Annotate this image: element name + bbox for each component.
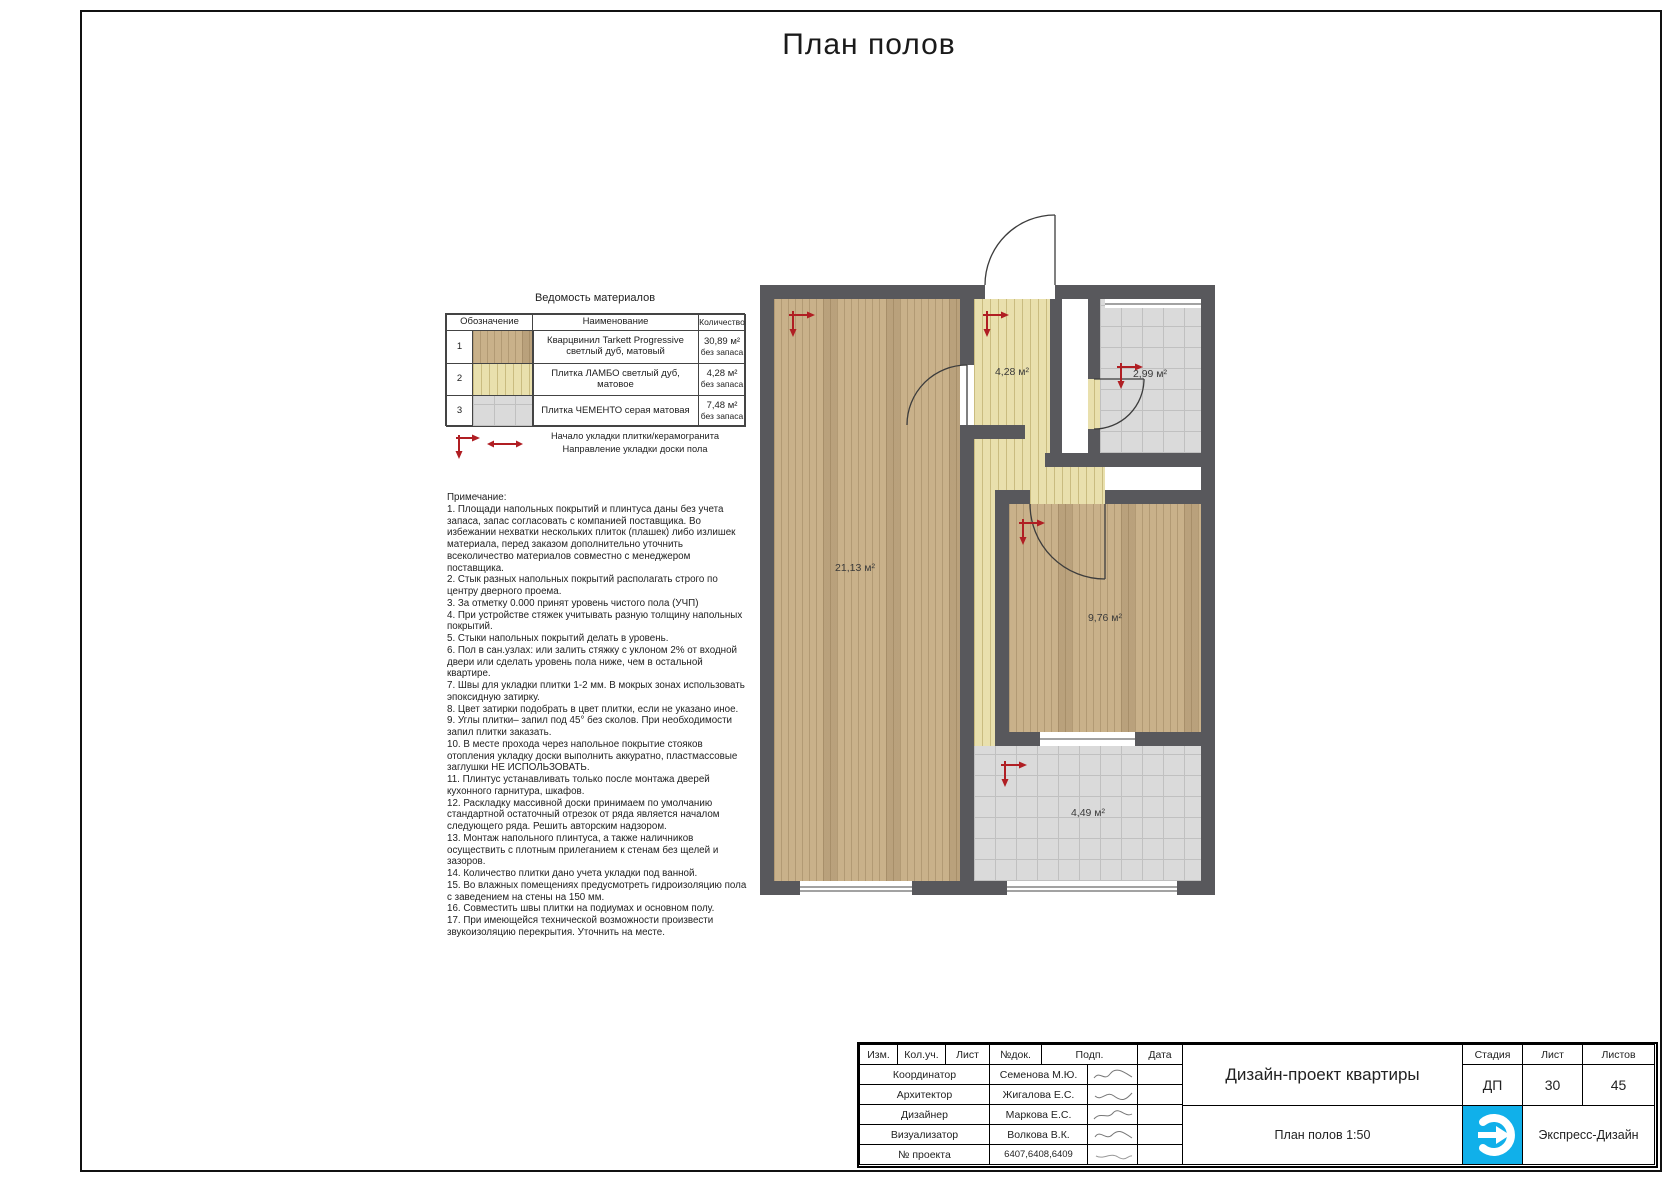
floor-plan: 21,13 м² 4,28 м² 2,99 м² 9,76 м² 4,49 м² bbox=[760, 200, 1215, 895]
note-item: 12. Раскладку массивной доски принимаем … bbox=[447, 798, 749, 833]
qty-note: без запаса bbox=[701, 348, 744, 358]
tb-name: Жигалова Е.С. bbox=[989, 1084, 1088, 1105]
qty-value: 30,89 м² bbox=[704, 337, 740, 348]
tb-role: Координатор bbox=[859, 1064, 990, 1085]
note-item: 17. При имеющейся технической возможност… bbox=[447, 915, 749, 939]
note-item: 14. Количество плитки дано учета укладки… bbox=[447, 868, 749, 880]
tb-header-koluch: Кол.уч. bbox=[897, 1044, 946, 1065]
tile-start-marker bbox=[1019, 519, 1045, 545]
tb-header-ndok: №док. bbox=[989, 1044, 1042, 1065]
note-item: 10. В месте прохода через напольное покр… bbox=[447, 739, 749, 774]
note-item: 16. Совместить швы плитки на подиумах и … bbox=[447, 903, 749, 915]
note-item: 15. Во влажных помещениях предусмотреть … bbox=[447, 880, 749, 904]
room-area-label: 2,99 м² bbox=[1110, 368, 1190, 380]
tb-date-cell bbox=[1137, 1144, 1183, 1165]
tb-role: Визуализатор bbox=[859, 1124, 990, 1145]
note-item: 9. Углы плитки– запил под 45° без сколов… bbox=[447, 715, 749, 739]
flooring-legend: Начало укладки плитки/керамогранита Напр… bbox=[445, 430, 745, 466]
qty-value: 7,48 м² bbox=[707, 401, 738, 412]
legend-line: Начало укладки плитки/керамогранита bbox=[530, 430, 740, 443]
legend-line: Направление укладки доски пола bbox=[530, 443, 740, 456]
room-area-label: 4,49 м² bbox=[1048, 807, 1128, 819]
note-item: 8. Цвет затирки подобрать в цвет плитки,… bbox=[447, 704, 749, 716]
tb-name: Семенова М.Ю. bbox=[989, 1064, 1088, 1085]
col-header-designation: Обозначение bbox=[446, 314, 533, 331]
tb-sheet-value: 30 bbox=[1522, 1064, 1583, 1106]
materials-table: Обозначение Наименование Количество 1 Кв… bbox=[445, 313, 745, 426]
col-header-name: Наименование bbox=[532, 314, 699, 331]
legend-icons bbox=[447, 430, 527, 464]
tb-date-cell bbox=[1137, 1104, 1183, 1125]
tb-signature-cell bbox=[1087, 1144, 1138, 1165]
tb-name: Волкова В.К. bbox=[989, 1124, 1088, 1145]
drawing-sheet: План полов Ведомость материалов Обозначе… bbox=[0, 0, 1680, 1187]
room-area-label: 9,76 м² bbox=[1065, 612, 1145, 624]
swatch-tile-cemento bbox=[472, 395, 534, 427]
table-row-num: 3 bbox=[446, 395, 473, 427]
swatch-tile-lambo bbox=[472, 363, 534, 396]
tb-signature-cell bbox=[1087, 1104, 1138, 1125]
signature-icon bbox=[1092, 1128, 1134, 1142]
company-logo-icon bbox=[1469, 1111, 1517, 1159]
signature-icon bbox=[1092, 1148, 1134, 1162]
tb-role: Дизайнер bbox=[859, 1104, 990, 1125]
material-name: Плитка ЛАМБО светлый дуб, матовое bbox=[532, 363, 699, 396]
bathroom-door-arc bbox=[1094, 379, 1144, 429]
note-item: 11. Плинтус устанавливать только после м… bbox=[447, 774, 749, 798]
tb-stage-value: ДП bbox=[1462, 1064, 1523, 1106]
signature-icon bbox=[1092, 1088, 1134, 1102]
note-item: 5. Стыки напольных покрытий делать в уро… bbox=[447, 633, 749, 645]
tb-sheets-value: 45 bbox=[1582, 1064, 1655, 1106]
tb-role: № проекта bbox=[859, 1144, 990, 1165]
room-area-label: 21,13 м² bbox=[815, 562, 895, 574]
tb-stage-header: Стадия bbox=[1462, 1044, 1523, 1065]
signature-icon bbox=[1092, 1108, 1134, 1122]
tb-date-cell bbox=[1137, 1124, 1183, 1145]
swatch-quartz-vinyl bbox=[472, 330, 534, 364]
tb-name: 6407,6408,6409 bbox=[989, 1144, 1088, 1165]
tile-start-marker bbox=[1001, 761, 1027, 787]
note-item: 4. При устройстве стяжек учитывать разну… bbox=[447, 610, 749, 634]
notes-title: Примечание: bbox=[447, 492, 749, 504]
tb-sheets-header: Листов bbox=[1582, 1044, 1655, 1065]
company-logo bbox=[1462, 1105, 1523, 1165]
note-item: 3. За отметку 0.000 принят уровень чисто… bbox=[447, 598, 749, 610]
material-name: Плитка ЧЕМЕНТО серая матовая bbox=[532, 395, 699, 427]
tb-header-data: Дата bbox=[1137, 1044, 1183, 1065]
page-title: План полов bbox=[80, 28, 1658, 62]
material-qty: 4,28 м² без запаса bbox=[698, 363, 746, 396]
tb-signature-cell bbox=[1087, 1084, 1138, 1105]
notes-block: Примечание: 1. Площади напольных покрыти… bbox=[447, 492, 749, 939]
qty-note: без запаса bbox=[701, 412, 744, 422]
entry-door-arc bbox=[985, 215, 1055, 285]
qty-note: без запаса bbox=[701, 380, 744, 390]
table-row-num: 2 bbox=[446, 363, 473, 396]
tb-role: Архитектор bbox=[859, 1084, 990, 1105]
tb-signature-cell bbox=[1087, 1064, 1138, 1085]
tb-sheet-header: Лист bbox=[1522, 1044, 1583, 1065]
title-block: Изм. Кол.уч. Лист №док. Подп. Дата Коорд… bbox=[857, 1042, 1658, 1168]
signature-icon bbox=[1092, 1068, 1134, 1082]
material-qty: 30,89 м² без запаса bbox=[698, 330, 746, 364]
tb-name: Маркова Е.С. bbox=[989, 1104, 1088, 1125]
tb-date-cell bbox=[1137, 1084, 1183, 1105]
table-row-num: 1 bbox=[446, 330, 473, 364]
tb-sheet-title: План полов 1:50 bbox=[1182, 1105, 1463, 1165]
room-area-label: 4,28 м² bbox=[972, 366, 1052, 378]
tile-start-icon bbox=[456, 435, 473, 452]
material-qty: 7,48 м² без запаса bbox=[698, 395, 746, 427]
tb-company-name: Экспресс-Дизайн bbox=[1522, 1105, 1655, 1165]
materials-table-title: Ведомость материалов bbox=[445, 292, 745, 304]
tb-header-list: Лист bbox=[945, 1044, 990, 1065]
note-item: 7. Швы для укладки плитки 1-2 мм. В мокр… bbox=[447, 680, 749, 704]
tb-header-izm: Изм. bbox=[859, 1044, 898, 1065]
bedroom-door-arc bbox=[1030, 504, 1105, 579]
tb-project-title: Дизайн-проект квартиры bbox=[1182, 1044, 1463, 1106]
legend-text: Начало укладки плитки/керамогранита Напр… bbox=[530, 430, 740, 456]
material-name: Кварцвинил Tarkett Progressive светлый д… bbox=[532, 330, 699, 364]
tile-start-marker bbox=[983, 311, 1009, 337]
tb-date-cell bbox=[1137, 1064, 1183, 1085]
tb-header-podp: Подп. bbox=[1041, 1044, 1138, 1065]
tile-start-marker bbox=[789, 311, 815, 337]
tb-signature-cell bbox=[1087, 1124, 1138, 1145]
living-door-arc bbox=[907, 365, 967, 425]
plan-overlay bbox=[760, 200, 1215, 895]
note-item: 6. Пол в сан.узлах: или залить стяжку с … bbox=[447, 645, 749, 680]
col-header-qty: Количество bbox=[698, 314, 746, 331]
note-item: 13. Монтаж напольного плинтуса, а также … bbox=[447, 833, 749, 868]
note-item: 1. Площади напольных покрытий и плинтуса… bbox=[447, 504, 749, 575]
note-item: 2. Стык разных напольных покрытий распол… bbox=[447, 574, 749, 598]
